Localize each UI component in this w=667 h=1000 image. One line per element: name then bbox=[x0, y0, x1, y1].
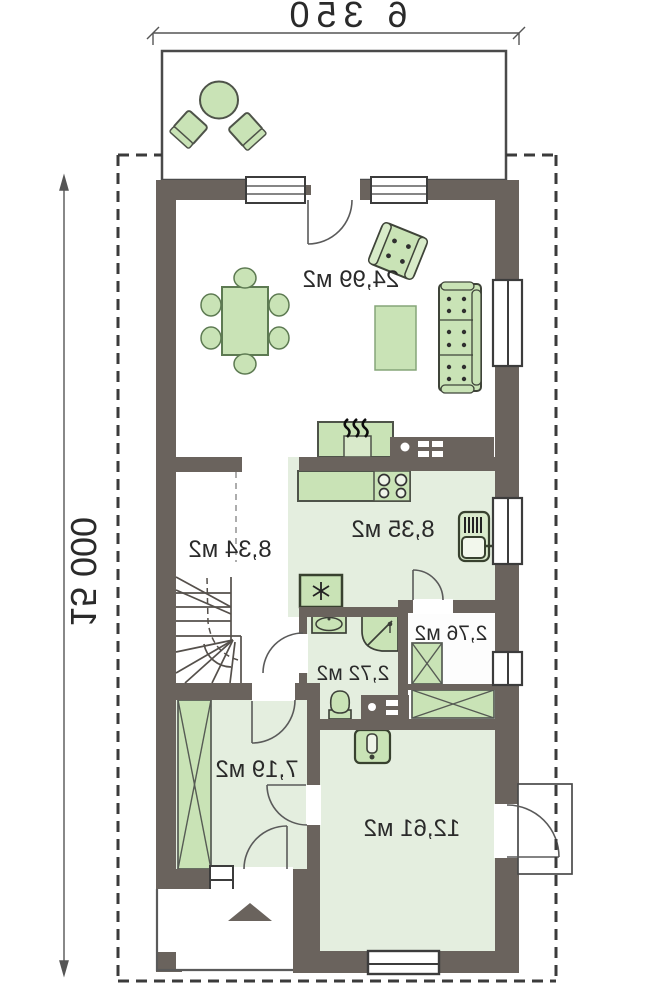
svg-text:8,34 м2: 8,34 м2 bbox=[188, 536, 271, 563]
svg-text:8,35 м2: 8,35 м2 bbox=[351, 516, 434, 543]
svg-text:2,72 м2: 2,72 м2 bbox=[317, 662, 390, 685]
svg-text:2,76 м2: 2,76 м2 bbox=[415, 622, 488, 645]
svg-text:15 000: 15 000 bbox=[63, 517, 104, 627]
svg-text:7,19 м2: 7,19 м2 bbox=[215, 756, 298, 783]
svg-text:12,61 м2: 12,61 м2 bbox=[364, 815, 461, 842]
svg-text:24,99 м2: 24,99 м2 bbox=[303, 266, 400, 293]
svg-text:6 350: 6 350 bbox=[282, 0, 407, 35]
